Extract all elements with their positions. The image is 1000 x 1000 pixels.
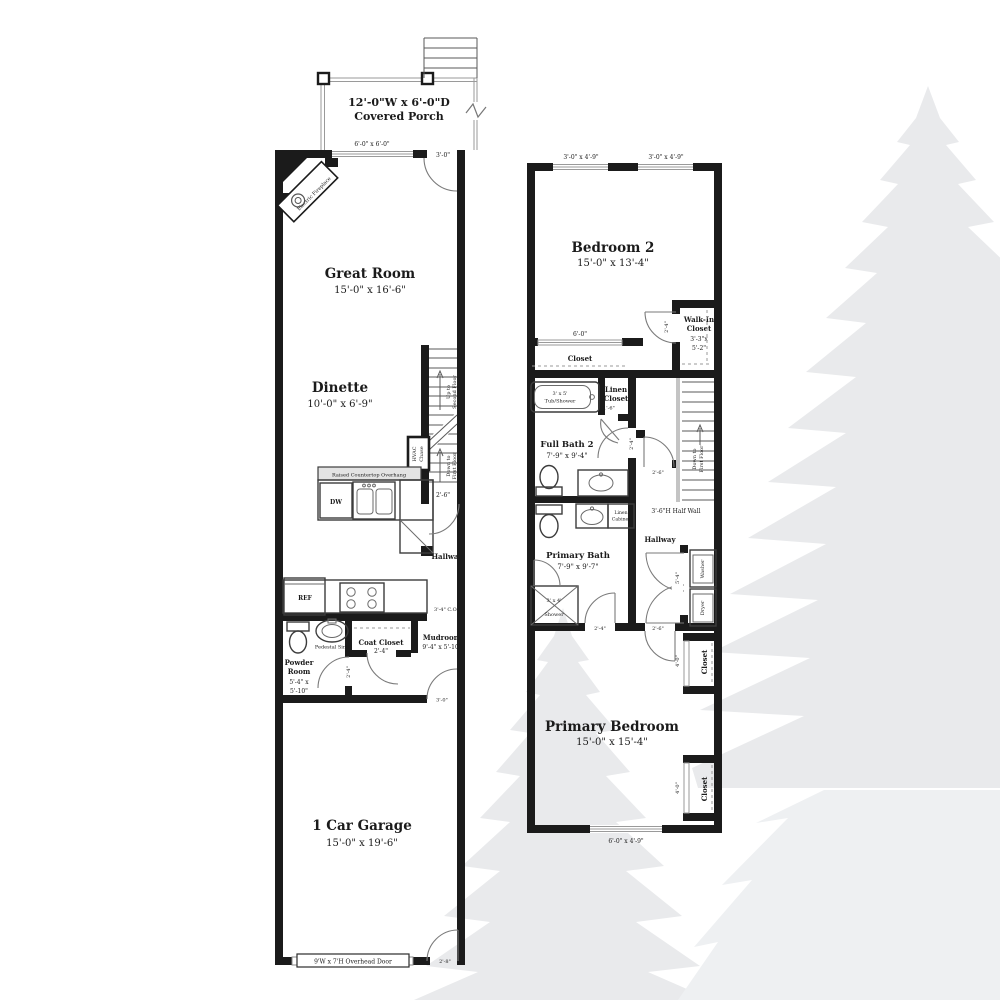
closet-upper-name: Closet — [700, 649, 709, 674]
stairs-down-label-2: First Floor — [452, 452, 458, 480]
pedestal-sink — [316, 619, 348, 642]
overhead-door-label: 9'W x 7'H Overhead Door — [314, 959, 392, 966]
hall-door-dim: 2'-6" — [652, 470, 664, 476]
watermark-trees — [414, 86, 1000, 1000]
tub-shower: 3' x 5' Tub/Shower — [531, 382, 599, 412]
pedestal-sink-label: Pedestal Sink — [315, 645, 350, 651]
porch-dims: 12'-0"W x 6'-0"D — [348, 96, 450, 109]
powder-room-name-2: Room — [288, 667, 311, 676]
washer: Washer — [690, 550, 716, 587]
hvac-label-2: Chase — [419, 446, 425, 462]
bedroom2-dims: 15'-0" x 13'-4" — [577, 258, 649, 269]
stair-door-dim: 2'-6" — [436, 492, 450, 499]
mudroom: Mudroom 9'-4" x 5'-10" 3'-0" — [422, 633, 461, 704]
great-room-name: Great Room — [325, 266, 415, 282]
great-room-dims: 15'-0" x 16'-6" — [334, 285, 406, 296]
kitchen: Raised Countertop Overhang DW REF — [283, 467, 433, 615]
cased-opening-label: 3'-4" C.O. — [434, 607, 458, 613]
mudroom-dims: 9'-4" x 5'-10" — [422, 644, 461, 651]
garage: 1 Car Garage 15'-0" x 19'-6" 2'-8" 9'W x… — [292, 818, 458, 967]
powder-room-dims-2: 5'-10" — [290, 688, 308, 695]
primary-bedroom-door-dim: 2'-6" — [652, 626, 664, 632]
primary-bedroom-door-arc — [645, 631, 675, 661]
porch-post-left — [318, 73, 329, 84]
bedroom2-name: Bedroom 2 — [572, 240, 655, 256]
toilet-primary — [536, 505, 562, 538]
hall-door-arc — [644, 437, 674, 467]
great-room-door-arc — [424, 158, 457, 191]
laundry-closet: 5'-4" Washer Dryer — [646, 550, 716, 626]
bedroom2-window-left — [553, 163, 608, 171]
tub-dim: 3' x 5' — [552, 391, 567, 397]
washer-label: Washer — [700, 559, 706, 578]
primary-bath-dims: 7'-9" x 9'-7" — [557, 563, 598, 571]
window-dim-top-right: 3'-0" x 4'-9" — [648, 154, 684, 161]
coat-closet-name: Coat Closet — [359, 638, 405, 647]
coat-closet-dim: 2'-4" — [374, 648, 388, 655]
laundry-dim: 5'-4" — [675, 572, 681, 584]
linen-closet-name-2: Closet — [604, 394, 629, 403]
second-floor-stairs: Down to First Floor 3'-6"H Half Wall — [651, 378, 714, 515]
linen-cabinet-label-1: Linen — [614, 510, 627, 516]
dishwasher-label: DW — [330, 499, 342, 506]
toilet-bath2 — [536, 466, 562, 497]
hallway-label-sf: Hallway — [644, 535, 676, 544]
primary-bath-door-arc — [585, 593, 615, 623]
garage-name: 1 Car Garage — [312, 818, 412, 834]
floor-plan-svg: 12'-0"W x 6'-0"D Covered Porch 6'-0" x 6… — [0, 0, 1000, 1000]
walk-in-name-1: Walk-In — [683, 315, 714, 324]
coat-closet-door-arc — [367, 653, 398, 684]
walk-in-name-2: Closet — [687, 324, 712, 333]
garage-dims: 15'-0" x 19'-6" — [326, 838, 398, 849]
dinette-name: Dinette — [312, 380, 368, 396]
powder-room-name-1: Powder — [285, 658, 314, 667]
raised-countertop-label: Raised Countertop Overhang — [332, 473, 407, 479]
garage-side-door-dim: 2'-8" — [439, 959, 451, 965]
tub-label: Tub/Shower — [545, 399, 576, 405]
shower-dim: 3' x 4' — [546, 598, 561, 604]
refrigerator: REF — [284, 578, 325, 615]
primary-bedroom-window — [590, 825, 662, 833]
great-room-door-dim: 3'-0" — [436, 152, 450, 159]
shower-door-arc — [534, 560, 560, 586]
walk-in-door-arc — [645, 312, 676, 343]
fireplace-corner-wedge — [283, 158, 307, 182]
mudroom-door-arc — [427, 669, 457, 699]
hvac-chase: HVAC Chase — [408, 437, 429, 470]
closet-upper-dim: 4'-0" — [675, 655, 681, 667]
tree-watermark-bottom-right — [678, 790, 1000, 1000]
primary-bedroom-name: Primary Bedroom — [545, 719, 679, 735]
powder-door-dim: 2'-4" — [346, 666, 352, 678]
walk-in-dims-2: 5'-2" — [692, 345, 706, 352]
great-room-window — [332, 150, 413, 158]
porch-name: Covered Porch — [354, 110, 444, 123]
sf-stairs-down-2: First Floor — [699, 445, 705, 473]
window-dim-bottom: 6'-0" x 4'-9" — [608, 838, 644, 845]
primary-bedroom-dims: 15'-0" x 15'-4" — [576, 737, 648, 748]
dinette-dims: 10'-0" x 6'-9" — [307, 399, 372, 410]
closet-lower-name: Closet — [700, 776, 709, 801]
floor-plan-page: 12'-0"W x 6'-0"D Covered Porch 6'-0" x 6… — [0, 0, 1000, 1000]
bedroom2-window-right — [638, 163, 693, 171]
shower: 3' x 4' Shower — [531, 586, 578, 625]
tree-watermark-right — [692, 86, 1000, 788]
closet-lower-dim: 4'-0" — [675, 782, 681, 794]
dryer-label: Dryer — [700, 600, 706, 615]
bedroom2-closet: 6'-0" Closet — [532, 331, 628, 366]
hvac-label-1: HVAC — [412, 446, 418, 461]
toilet — [287, 622, 309, 653]
dryer: Dryer — [690, 589, 716, 626]
stairs-up-label-2: Second Floor — [452, 375, 458, 409]
closet-opening-dim: 6'-0" — [573, 331, 587, 338]
vanity-bath2 — [578, 470, 628, 496]
shower-label: Shower — [544, 612, 564, 618]
window-dim-top-left: 3'-0" x 4'-9" — [563, 154, 599, 161]
walk-in-door-dim: 2'-4" — [664, 321, 670, 333]
linen-closet-door-dim: 1'-6" — [603, 406, 615, 412]
full-bath2-door-dim: 2'-4" — [629, 438, 635, 450]
first-floor-stairs: Up to Second Floor Down to First Floor — [429, 349, 458, 482]
sf-stairs-down-1: Down to — [692, 448, 698, 469]
mudroom-name: Mudroom — [423, 633, 462, 642]
primary-bath-door-dim: 2'-4" — [594, 626, 606, 632]
range — [340, 583, 384, 612]
refrigerator-label: REF — [298, 595, 313, 602]
linen-closet-name-1: Linen — [605, 385, 627, 394]
primary-bath-name: Primary Bath — [546, 551, 610, 561]
vanity-primary — [576, 504, 608, 528]
full-bath2-dims: 7'-9" x 9'-4" — [546, 452, 587, 460]
full-bath-2: 3' x 5' Tub/Shower Linen Closet 1'-6" Fu… — [531, 382, 635, 496]
kitchen-sink — [353, 482, 395, 519]
primary-bath: Linen Cabinet Primary Bath 7'-9" x 9'-7"… — [531, 504, 634, 632]
first-floor-plan: 12'-0"W x 6'-0"D Covered Porch 6'-0" x 6… — [275, 38, 487, 967]
bedroom2-closet-name: Closet — [568, 354, 593, 363]
walk-in-dims-1: 3'-3"x — [690, 336, 708, 343]
powder-room-dims-1: 5'-4" x — [289, 679, 309, 686]
powder-room: Pedestal Sink Powder Room 5'-4" x 5'-10"… — [285, 619, 353, 695]
half-wall — [676, 378, 680, 502]
porch-window-dim: 6'-0" x 6'-0" — [354, 141, 390, 148]
full-bath2-name: Full Bath 2 — [540, 440, 593, 450]
closet-upper: Closet 4'-0" — [675, 641, 712, 686]
covered-porch: 12'-0"W x 6'-0"D Covered Porch 6'-0" x 6… — [318, 38, 487, 150]
half-wall-label: 3'-6"H Half Wall — [651, 508, 700, 515]
linen-cabinet-label-2: Cabinet — [612, 517, 630, 523]
hallway-label-ff: Hallway — [431, 552, 463, 561]
mudroom-door-dim: 3'-0" — [436, 698, 448, 704]
